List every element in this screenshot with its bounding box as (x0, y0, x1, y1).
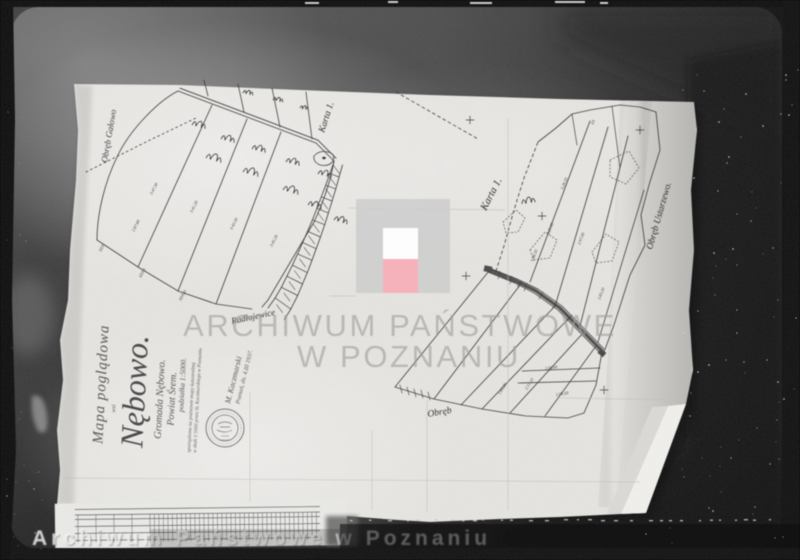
svg-text:W POZNANIU: W POZNANIU (297, 339, 521, 374)
svg-text:ARCHIWUM PAŃSTWOWE: ARCHIWUM PAŃSTWOWE (183, 308, 617, 343)
